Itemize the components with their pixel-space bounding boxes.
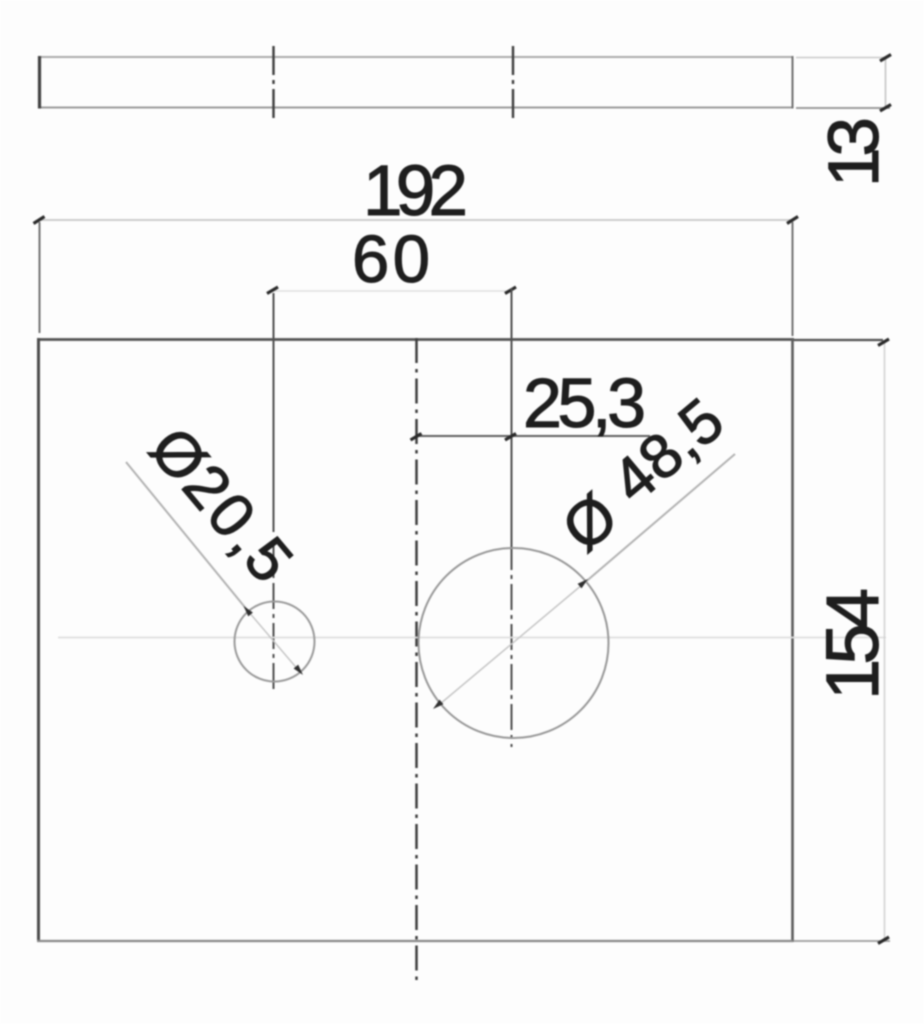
svg-text:25,3: 25,3 xyxy=(523,364,646,442)
svg-text:13: 13 xyxy=(815,117,894,187)
svg-text:154: 154 xyxy=(811,588,894,700)
svg-text:192: 192 xyxy=(363,152,468,231)
